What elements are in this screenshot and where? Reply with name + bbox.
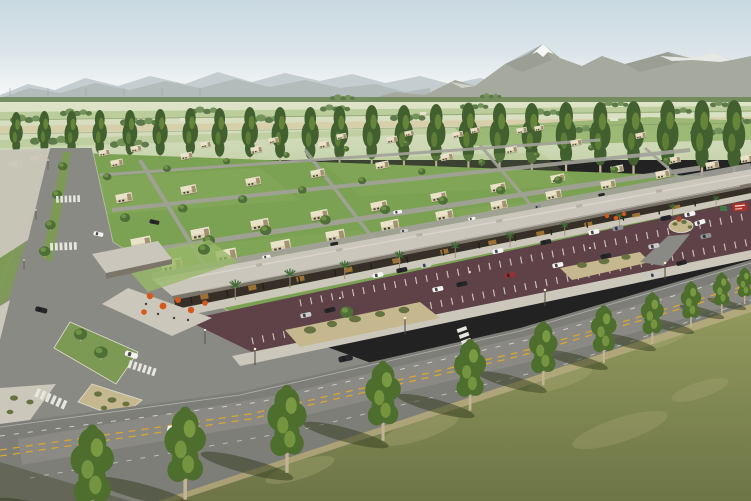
green-sign: [720, 206, 727, 211]
red-shrub: [676, 216, 682, 222]
aerial-masterplan-rendering: [0, 0, 751, 501]
red-sign: [733, 202, 748, 211]
rendering-canvas: [0, 0, 751, 501]
